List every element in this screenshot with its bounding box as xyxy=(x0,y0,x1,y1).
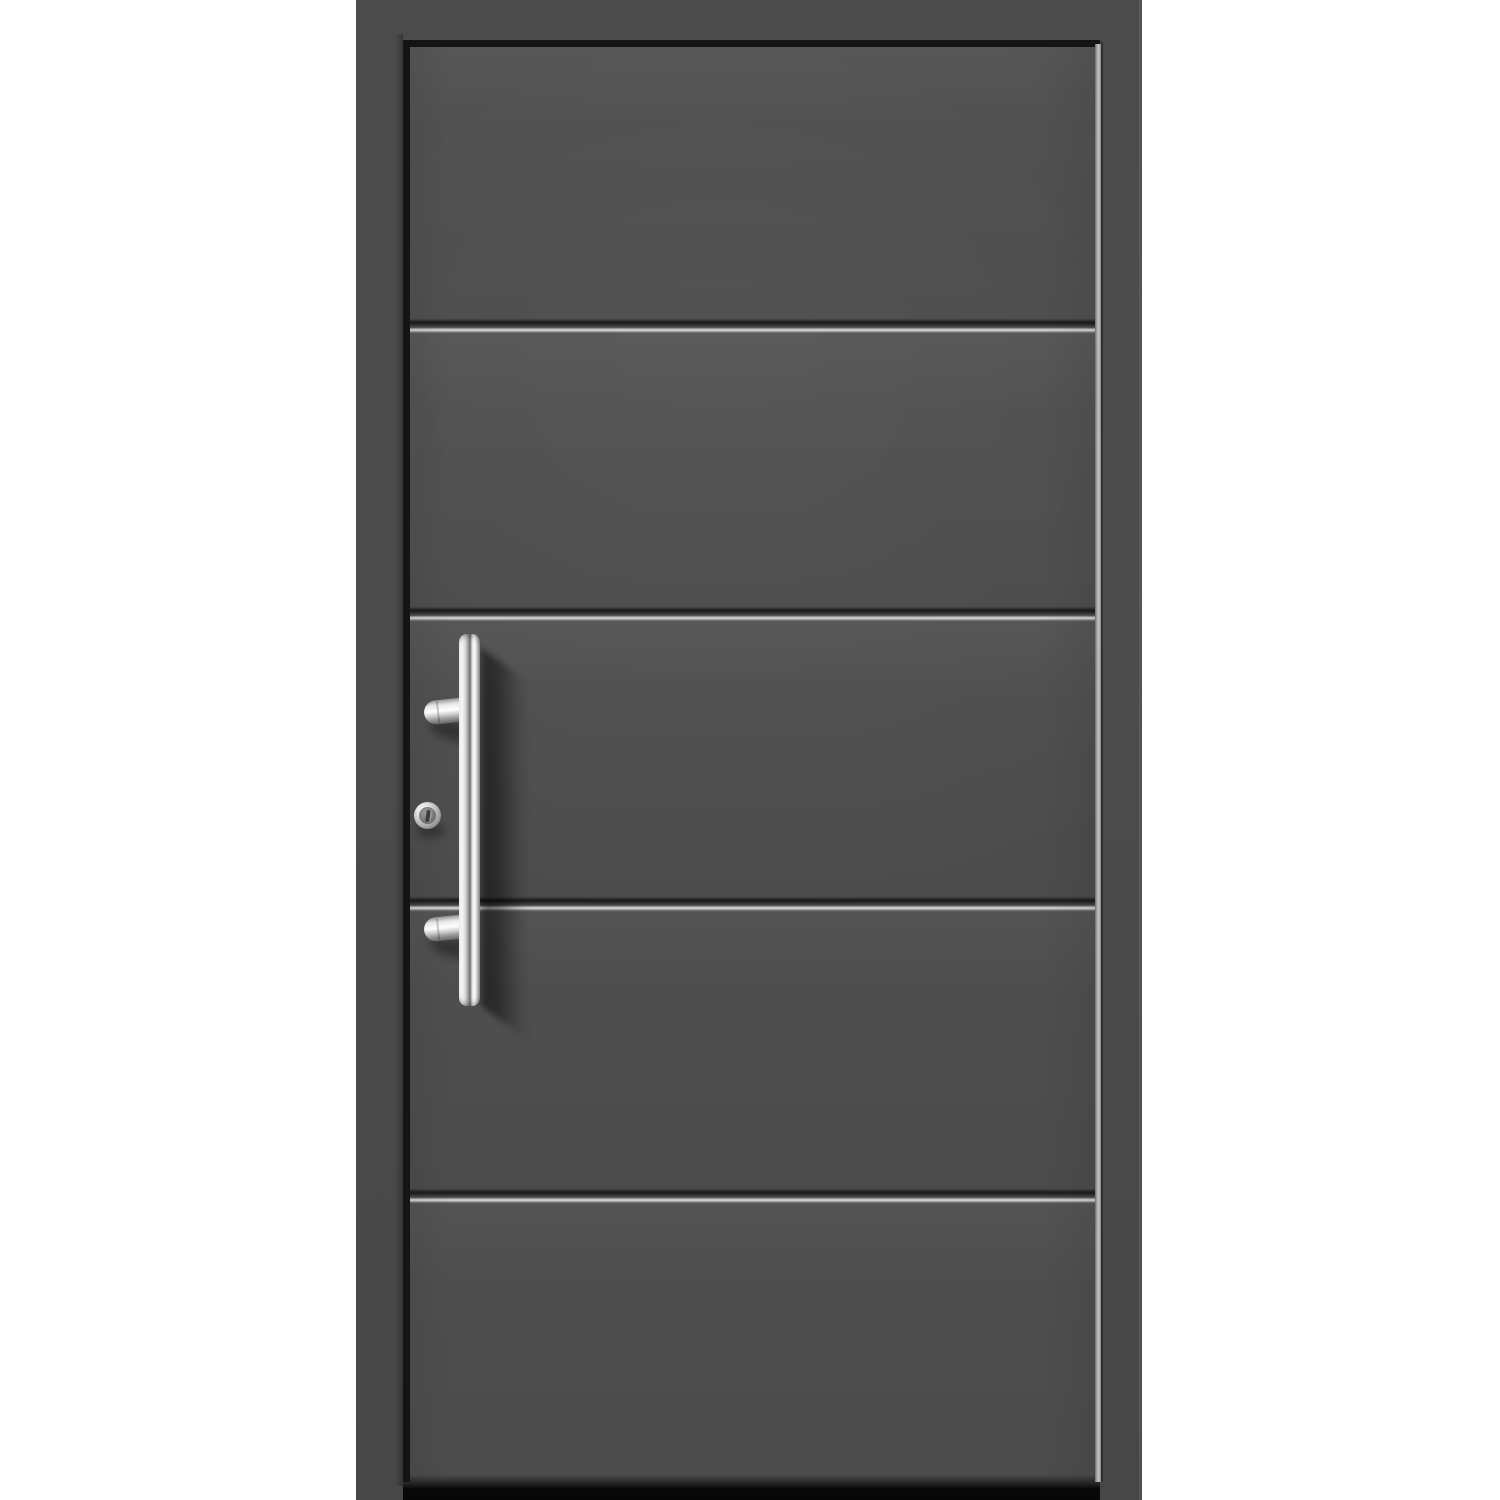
frame-outer-edge xyxy=(1139,0,1142,1500)
door-panel-1 xyxy=(410,47,1095,318)
door-groove-1 xyxy=(410,318,1095,334)
door-reveal-left xyxy=(403,40,410,1482)
door-groove-4 xyxy=(410,1188,1095,1204)
door-leaf-bottom-edge xyxy=(410,1475,1095,1482)
door-bottom-seal xyxy=(403,1482,1100,1500)
door-reveal-right xyxy=(1101,42,1103,1482)
door-panel-2 xyxy=(410,334,1095,606)
door-leaf-edge-highlight xyxy=(1095,44,1101,1482)
lock-thumbturn-core xyxy=(419,807,436,824)
lock-thumbturn-slot-icon xyxy=(425,809,431,821)
lock-thumbturn xyxy=(414,802,441,829)
pull-handle-bar xyxy=(459,634,480,1006)
handle-cast-shadow xyxy=(481,648,529,1040)
door-groove-2 xyxy=(410,606,1095,622)
door-panel-5 xyxy=(410,1204,1095,1482)
frame-inner-shade xyxy=(395,34,403,1486)
door-reveal-top xyxy=(403,40,1100,47)
product-photo-door xyxy=(0,0,1500,1500)
